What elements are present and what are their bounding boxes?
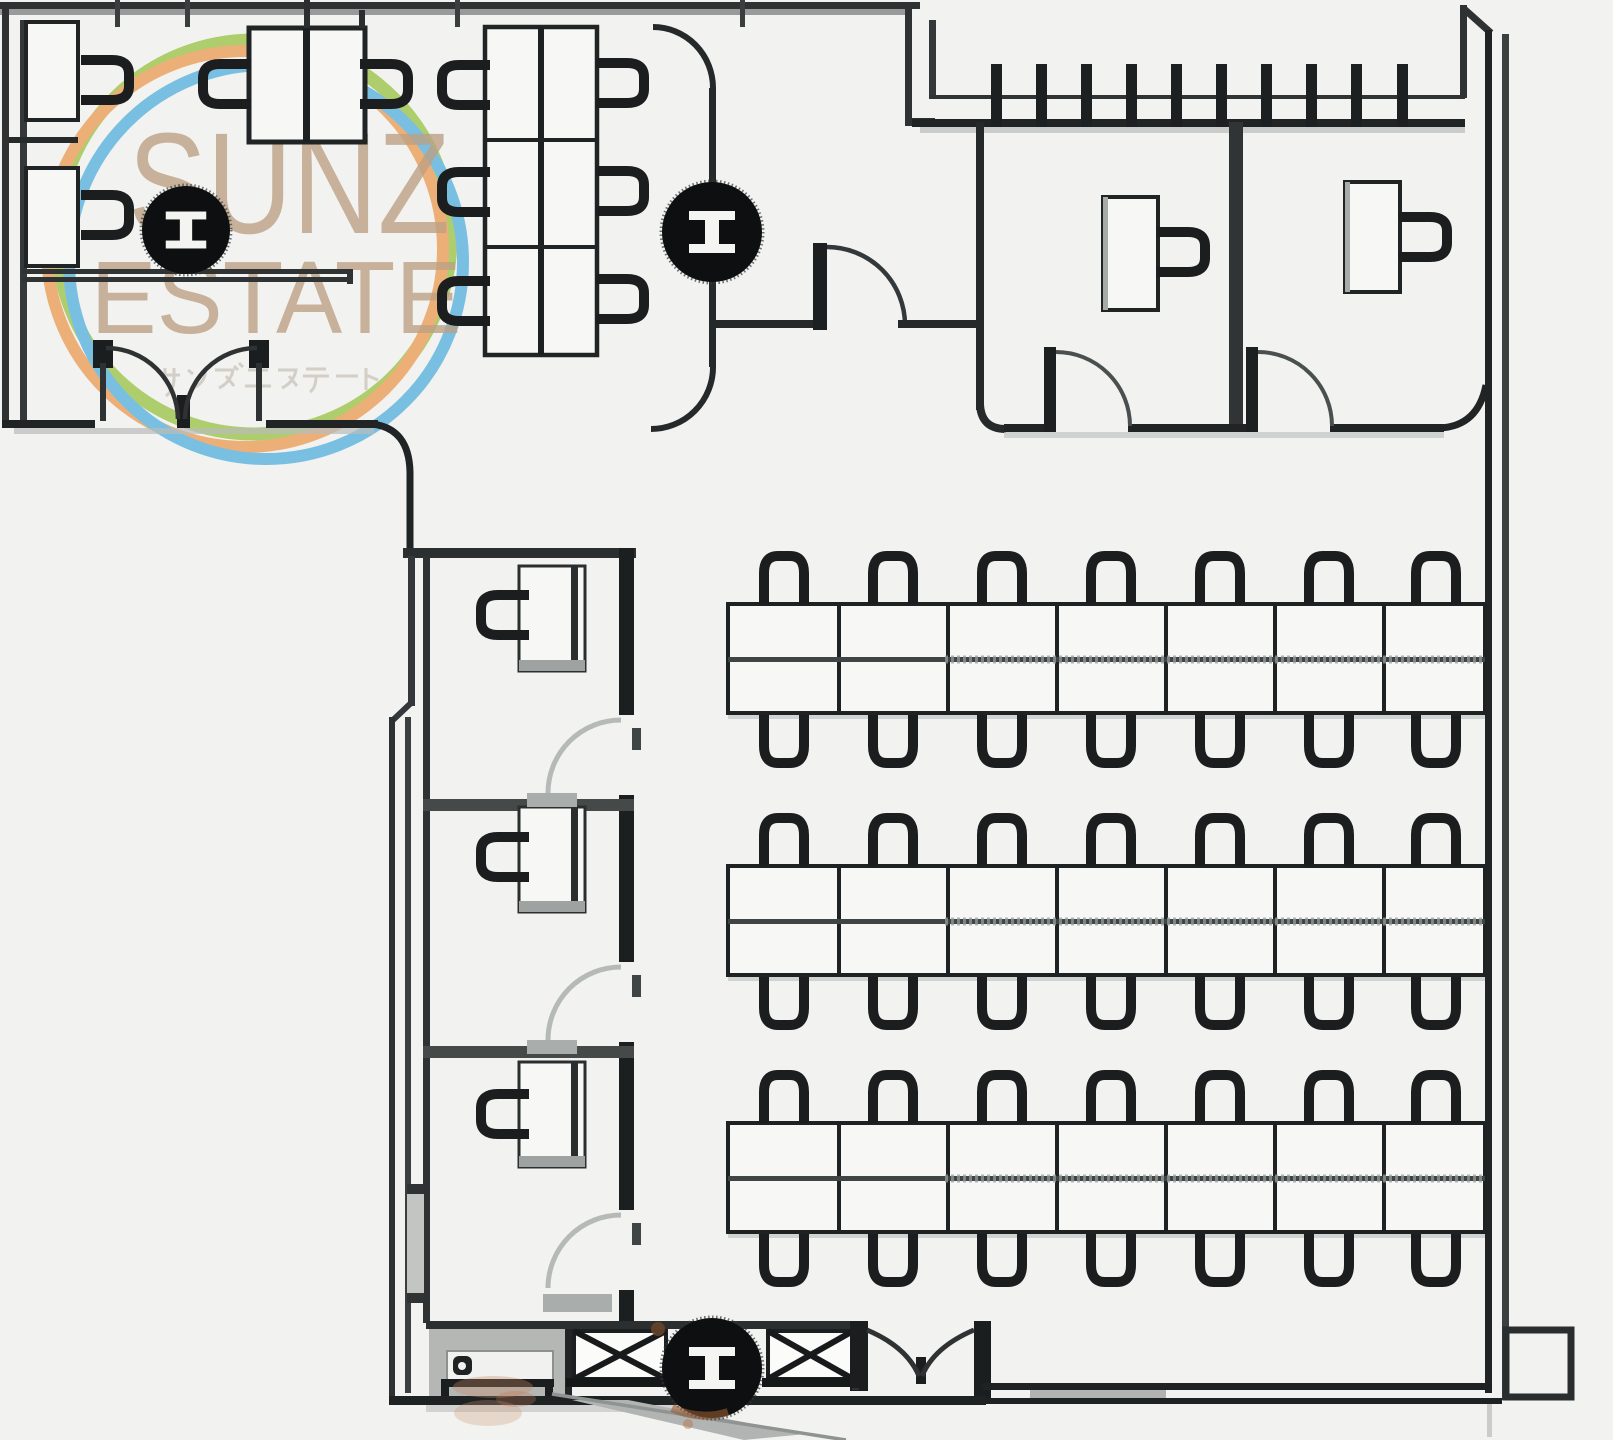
svg-text:ESTATE: ESTATE bbox=[91, 240, 462, 355]
